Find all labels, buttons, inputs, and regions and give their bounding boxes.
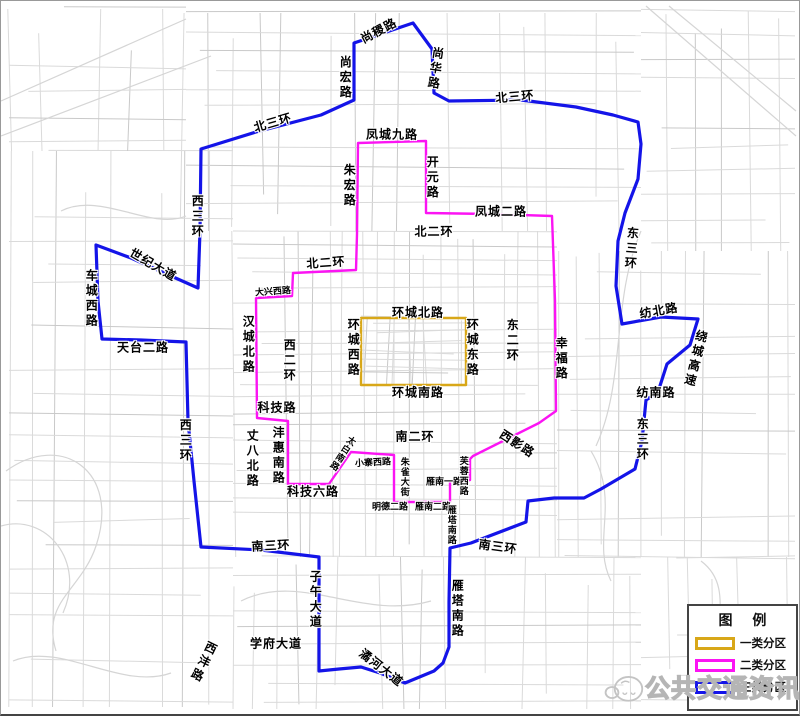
street-grid [1, 1, 800, 716]
legend-item-class3: 三类分区 [695, 679, 790, 695]
zone-map: 尚稷路尚宏路尚华路北三环北三环西三环世纪大道车城西路天台二路西三环南三环子午大道… [0, 0, 800, 716]
legend-label-class3: 三类分区 [740, 679, 786, 695]
legend-label-class1: 一类分区 [740, 635, 786, 651]
legend-title: 图 例 [695, 610, 790, 630]
legend-item-class2: 二类分区 [695, 657, 790, 673]
legend: 图 例 一类分区 二类分区 三类分区 [687, 604, 798, 711]
legend-swatch-class1-icon [695, 637, 735, 650]
legend-item-class1: 一类分区 [695, 635, 790, 651]
zone-boundary-2 [256, 141, 556, 502]
legend-swatch-class3-icon [695, 681, 735, 694]
legend-swatch-class2-icon [695, 659, 735, 672]
legend-label-class2: 二类分区 [740, 657, 786, 673]
